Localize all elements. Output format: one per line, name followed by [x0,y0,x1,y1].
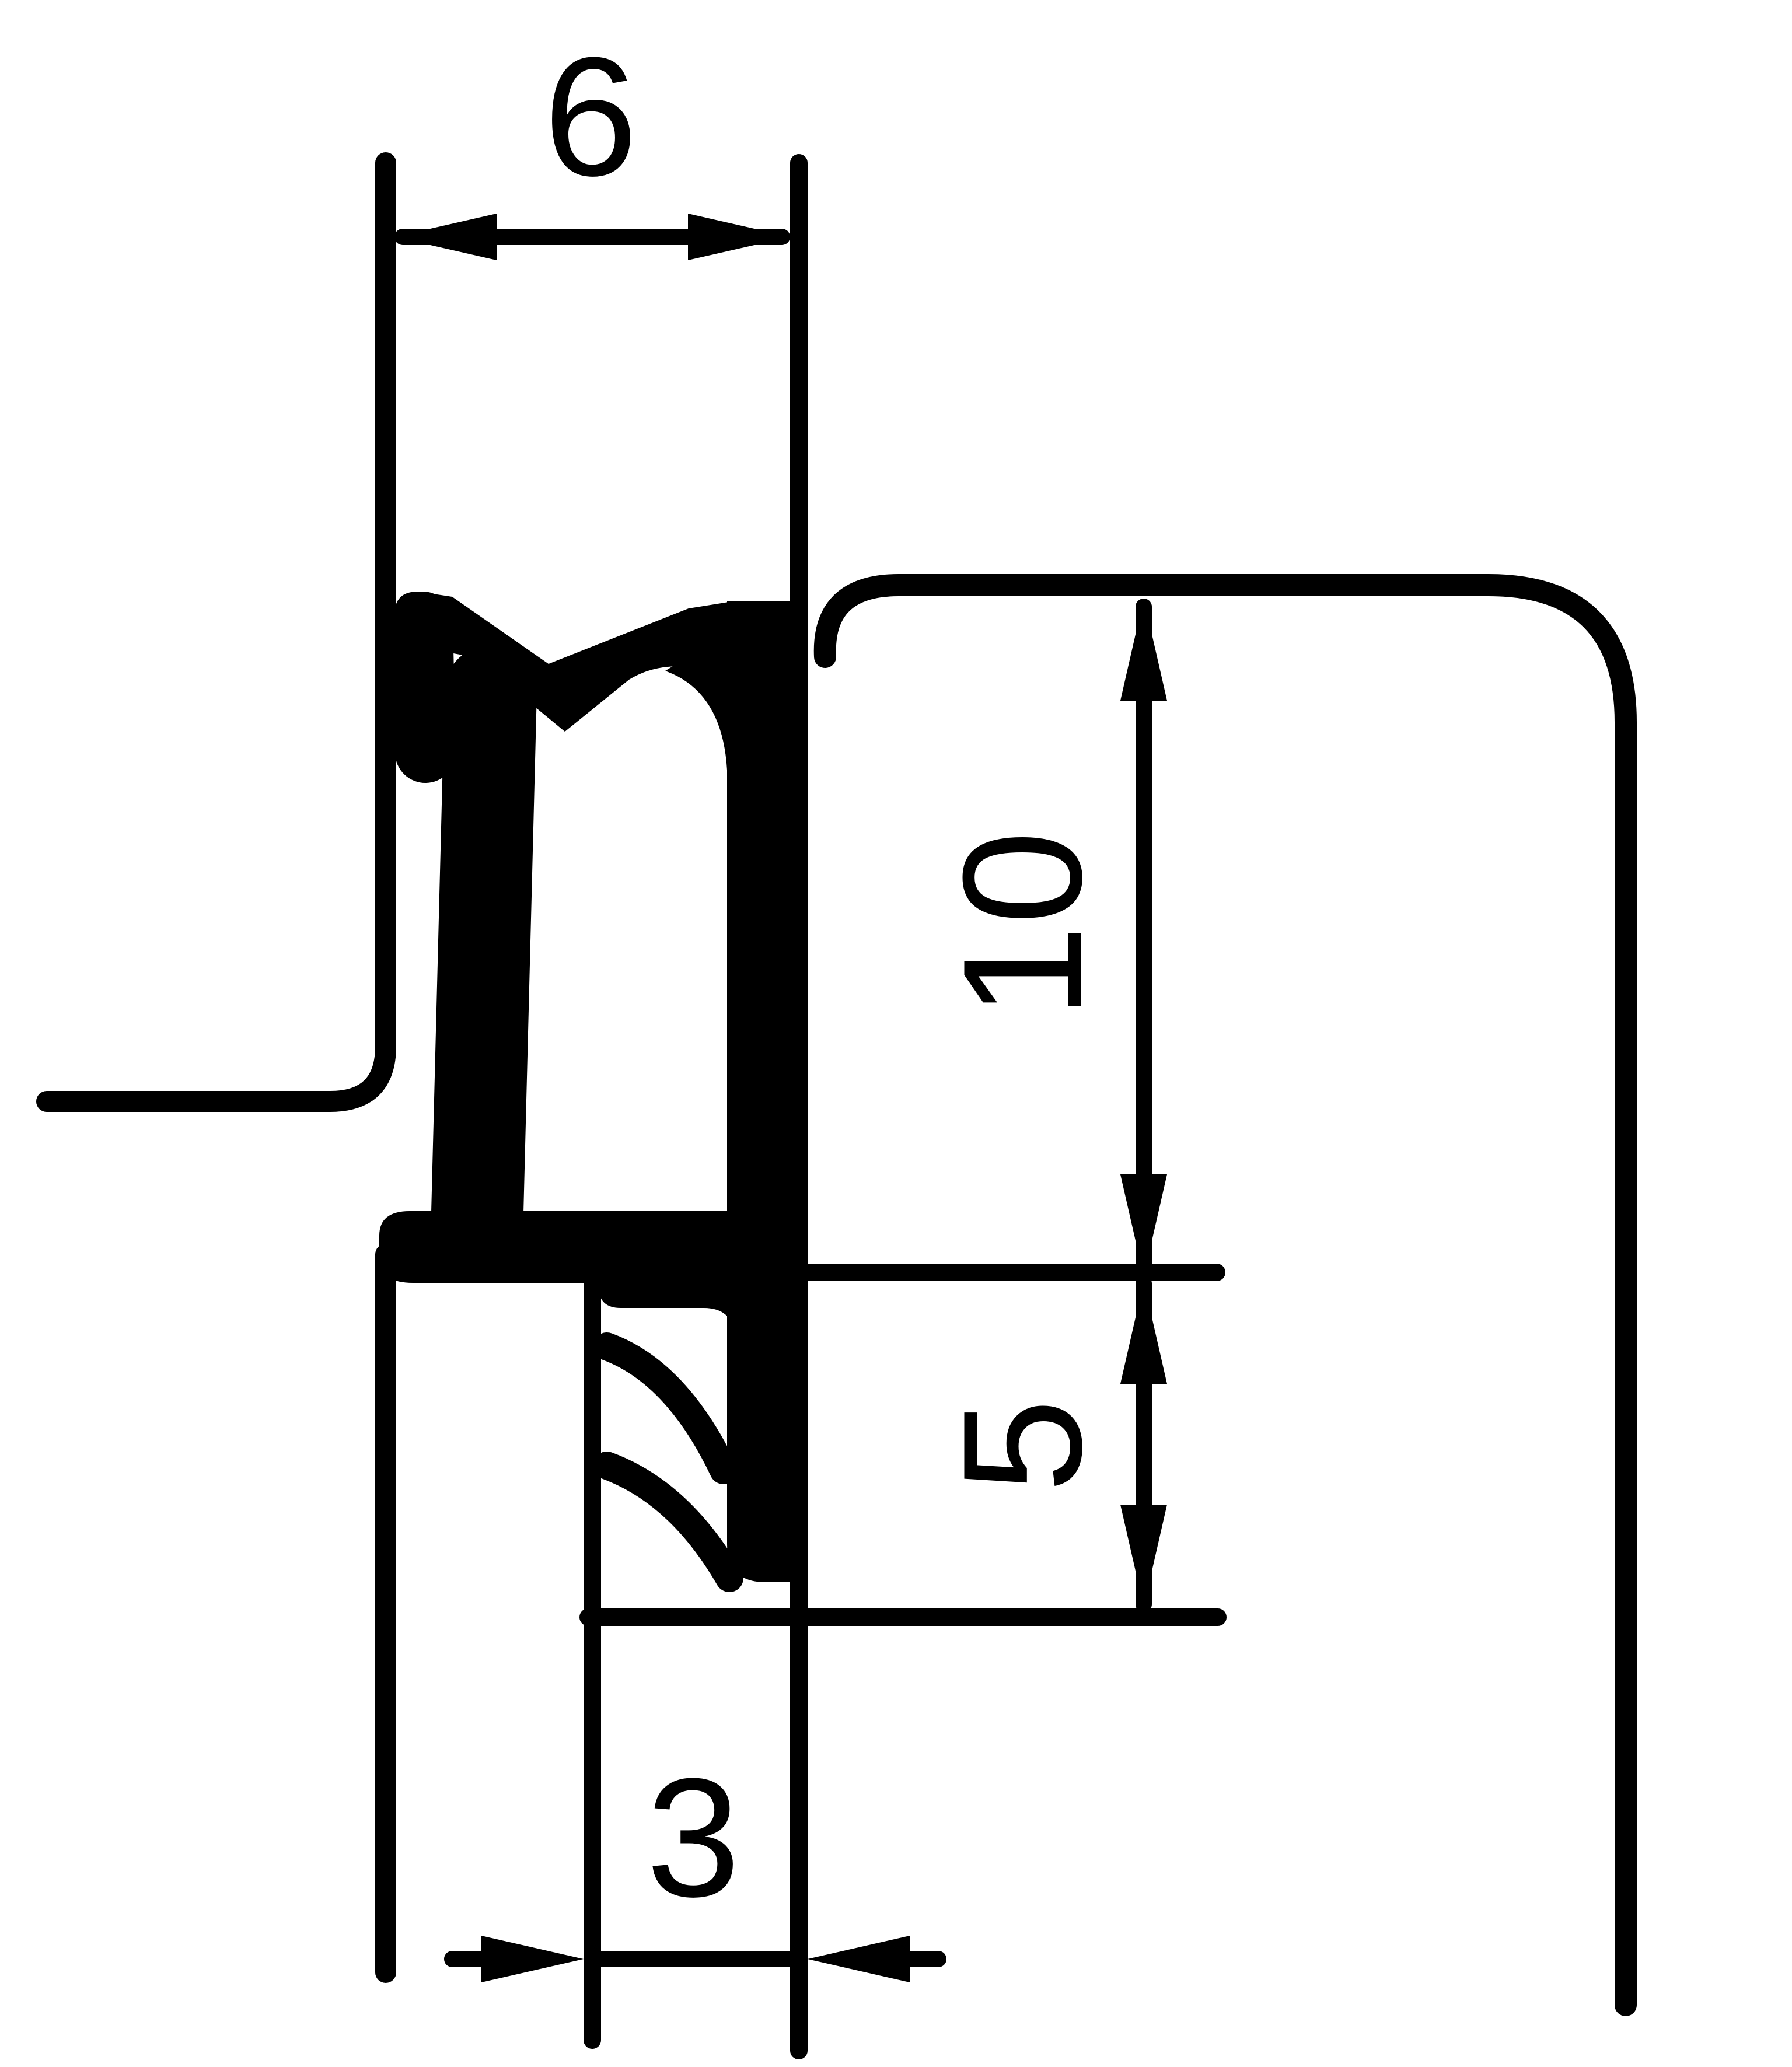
dimension-5-label: 5 [928,1398,1117,1492]
dimension-6-label: 6 [543,22,637,211]
dimension-6-arrow-right [688,214,790,260]
seal-left-bulb [422,622,425,753]
seal-fin-lower [607,1466,729,1578]
seal-profile-technical-drawing: 6 10 5 3 [0,0,1792,2067]
dimension-10-arrow-bottom [1120,1174,1167,1276]
frame-profile-outline [825,585,1626,2005]
dimension-10-label: 10 [928,831,1117,1019]
seal-fin-upper [607,1346,724,1470]
dimension-5-arrow-bottom [1120,1505,1167,1607]
dimension-5-arrow-top [1120,1282,1167,1384]
dimension-3-arrow-left [481,1936,584,1982]
dimension-10-arrow-top [1120,599,1167,701]
dimension-5: 5 [928,1282,1167,1607]
dimension-6-arrow-left [394,214,497,260]
dimension-3: 3 [452,1743,938,1982]
drawing-canvas: 6 10 5 3 [0,0,1792,2067]
seal-right-slab [727,601,806,1582]
seal-diagonal-leg [477,691,491,1236]
sash-profile-outline [47,163,386,1101]
dimension-3-label: 3 [646,1743,740,1932]
dimension-10: 10 [928,599,1167,1276]
seal-bottom-band [379,1211,735,1342]
dimension-6: 6 [394,22,790,260]
